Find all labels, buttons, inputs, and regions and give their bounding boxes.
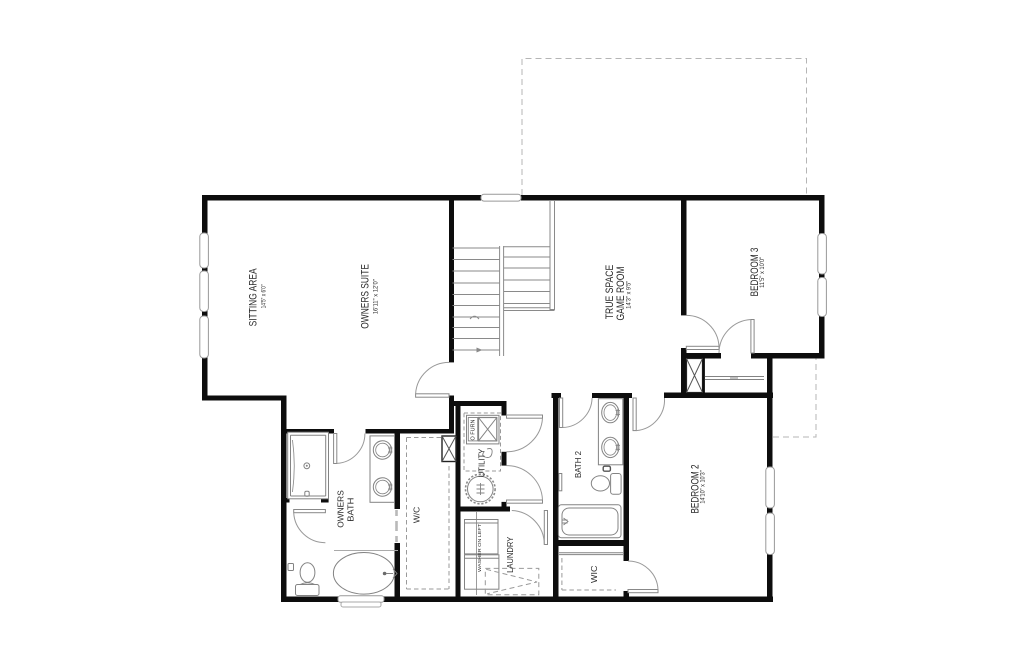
svg-text:14'3" x 9'5": 14'3" x 9'5" <box>626 281 632 309</box>
svg-text:14'10" x 10'3": 14'10" x 10'3" <box>701 470 707 503</box>
svg-text:SITTING AREA: SITTING AREA <box>248 268 260 327</box>
svg-text:WASHER ON LEFT: WASHER ON LEFT <box>477 524 482 572</box>
svg-text:GAME ROOM: GAME ROOM <box>615 267 627 321</box>
svg-text:14'5" x 6'0": 14'5" x 6'0" <box>262 284 268 308</box>
svg-text:WIC: WIC <box>590 565 599 583</box>
svg-text:BATH 2: BATH 2 <box>574 450 583 478</box>
svg-text:LAUNDRY: LAUNDRY <box>506 536 515 573</box>
svg-text:UTILITY: UTILITY <box>477 448 486 477</box>
svg-text:BEDROOM 3: BEDROOM 3 <box>749 248 761 297</box>
svg-text:11'5" x 10'0": 11'5" x 10'0" <box>760 257 766 288</box>
svg-text:BATH: BATH <box>347 497 356 521</box>
svg-text:OWNERS: OWNERS <box>337 490 346 528</box>
svg-text:16'11" x 12'0": 16'11" x 12'0" <box>374 279 380 314</box>
svg-text:W/C: W/C <box>413 507 422 524</box>
svg-text:O FURN: O FURN <box>471 419 477 440</box>
svg-text:OWNERS SUITE: OWNERS SUITE <box>359 264 371 329</box>
